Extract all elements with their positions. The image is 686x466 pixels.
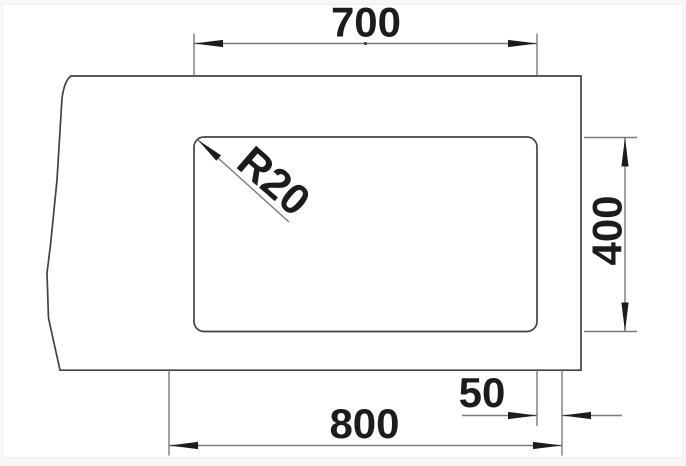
- svg-text:R20: R20: [228, 138, 319, 226]
- svg-text:800: 800: [329, 400, 399, 447]
- svg-text:400: 400: [584, 195, 631, 265]
- svg-text:700: 700: [331, 0, 401, 46]
- svg-text:50: 50: [459, 369, 506, 416]
